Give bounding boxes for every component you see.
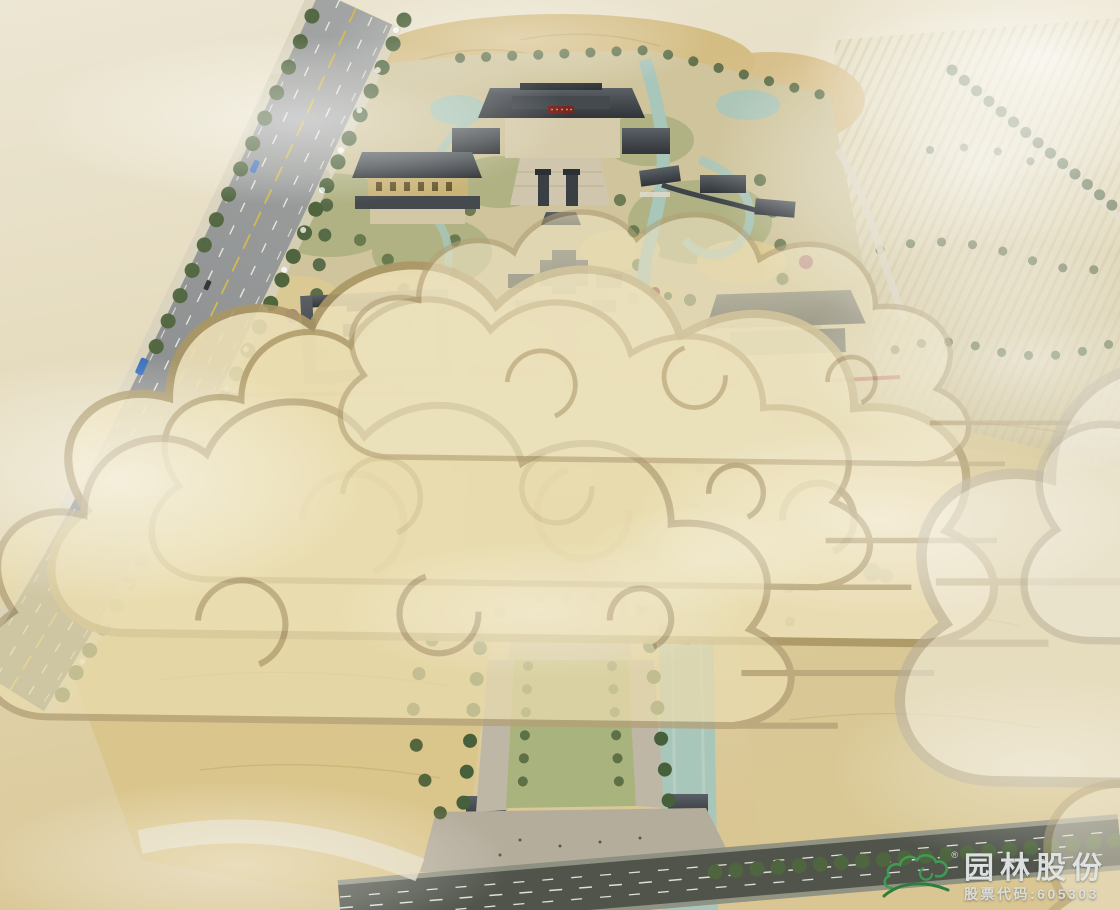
registered-mark: ®: [951, 850, 958, 860]
company-watermark: ® 园林股份 股票代码:605303: [880, 852, 1108, 902]
stock-code: 股票代码:605303: [964, 887, 1108, 902]
rendering-canvas: [0, 0, 1120, 910]
cloud-over-hill-icon: ®: [880, 852, 952, 902]
rendering-stage: ® 园林股份 股票代码:605303: [0, 0, 1120, 910]
company-name: 园林股份: [964, 853, 1108, 885]
